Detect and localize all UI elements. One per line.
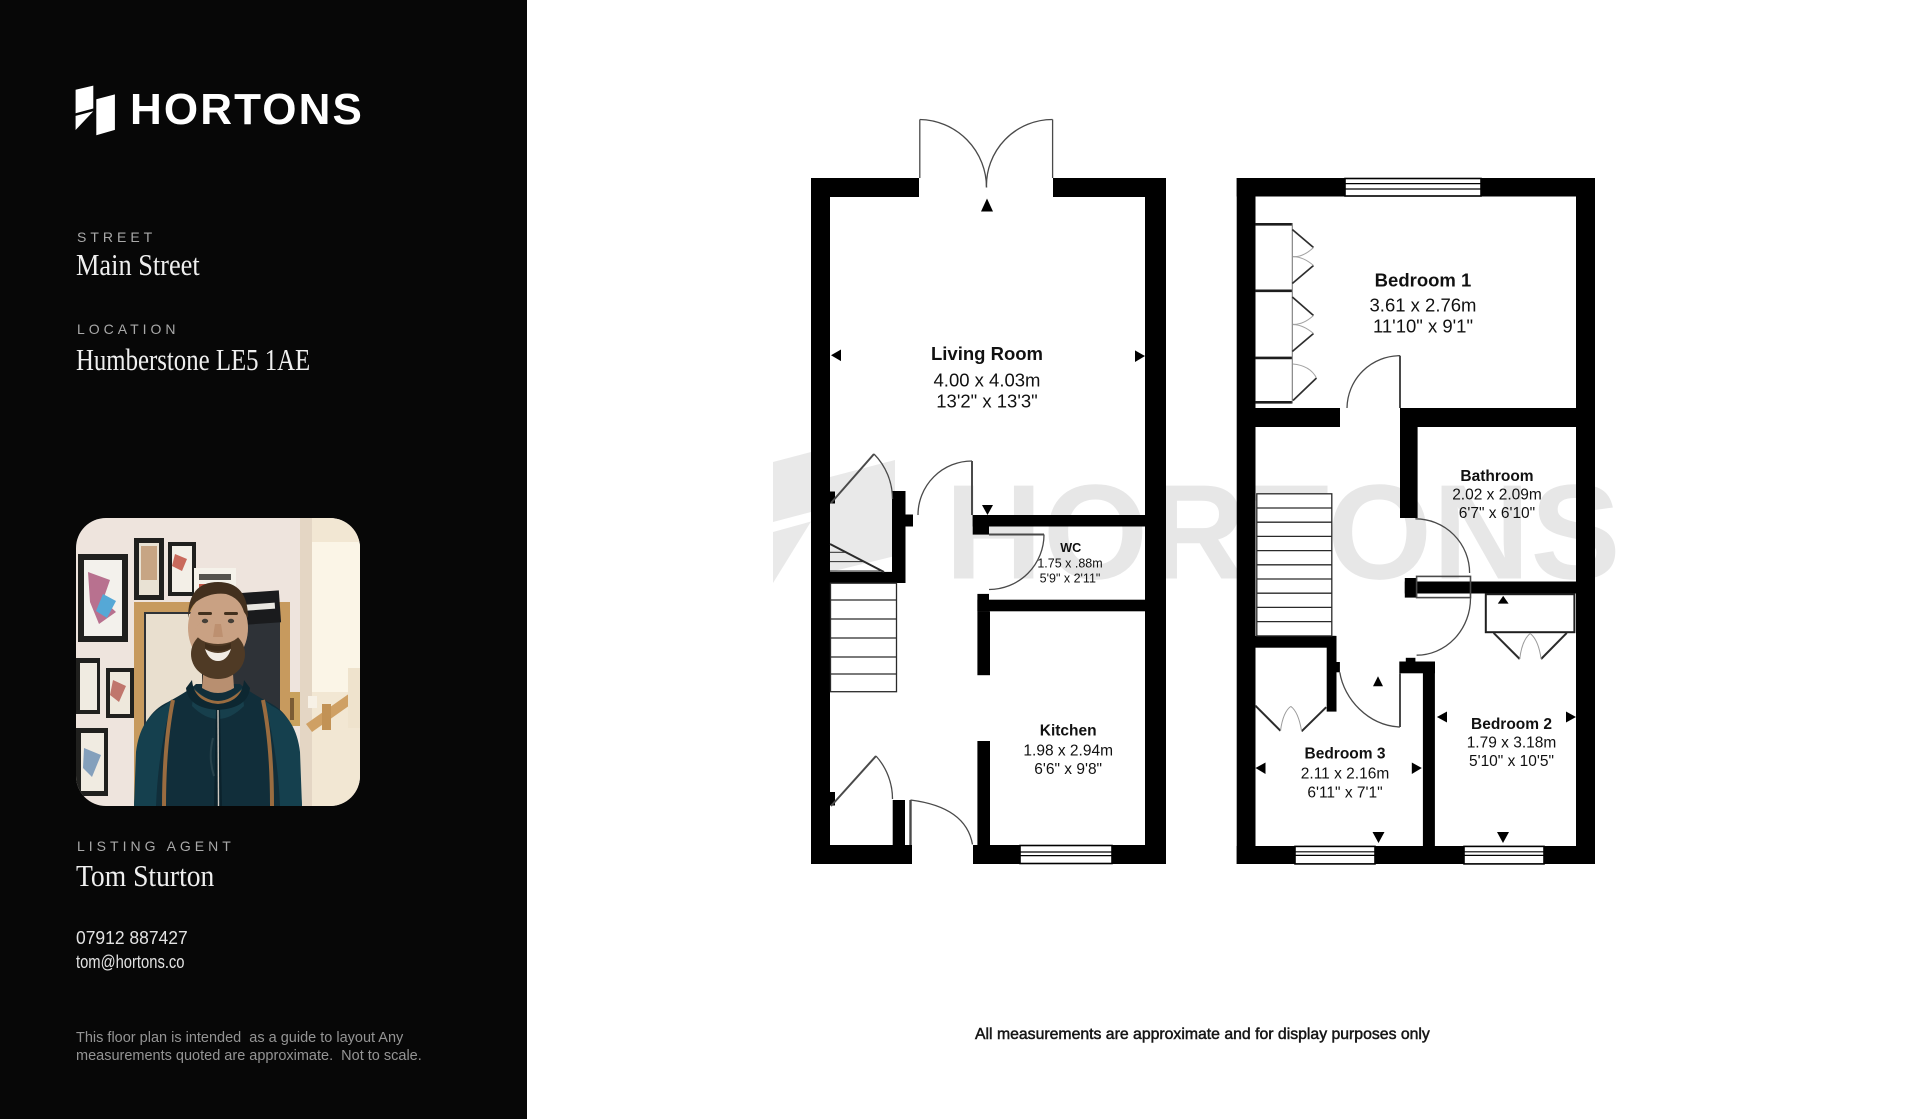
svg-text:WC: WC <box>1060 541 1081 555</box>
svg-text:6'6" x 9'8": 6'6" x 9'8" <box>1034 761 1102 778</box>
svg-text:1.98 x 2.94m: 1.98 x 2.94m <box>1023 743 1113 760</box>
svg-text:5'10" x 10'5": 5'10" x 10'5" <box>1469 753 1554 770</box>
svg-text:1.79 x 3.18m: 1.79 x 3.18m <box>1467 735 1557 752</box>
svg-text:4.00 x 4.03m: 4.00 x 4.03m <box>934 370 1041 391</box>
svg-text:2.11 x 2.16m: 2.11 x 2.16m <box>1301 766 1389 783</box>
svg-text:Kitchen: Kitchen <box>1040 722 1097 739</box>
svg-text:5'9" x 2'11": 5'9" x 2'11" <box>1040 572 1101 586</box>
svg-text:Living Room: Living Room <box>931 343 1043 364</box>
svg-text:Bedroom 3: Bedroom 3 <box>1305 746 1386 763</box>
svg-text:1.75 x .88m: 1.75 x .88m <box>1037 557 1102 571</box>
svg-text:6'11" x 7'1": 6'11" x 7'1" <box>1307 785 1382 802</box>
svg-text:11'10" x 9'1": 11'10" x 9'1" <box>1373 315 1473 336</box>
svg-text:6'7" x 6'10": 6'7" x 6'10" <box>1459 505 1535 522</box>
svg-text:Bedroom 2: Bedroom 2 <box>1471 716 1552 733</box>
svg-text:2.02 x 2.09m: 2.02 x 2.09m <box>1452 487 1542 504</box>
svg-text:Bathroom: Bathroom <box>1460 468 1533 485</box>
svg-text:3.61 x 2.76m: 3.61 x 2.76m <box>1370 295 1477 316</box>
svg-text:13'2" x 13'3": 13'2" x 13'3" <box>936 391 1037 412</box>
svg-text:Bedroom 1: Bedroom 1 <box>1375 270 1472 291</box>
